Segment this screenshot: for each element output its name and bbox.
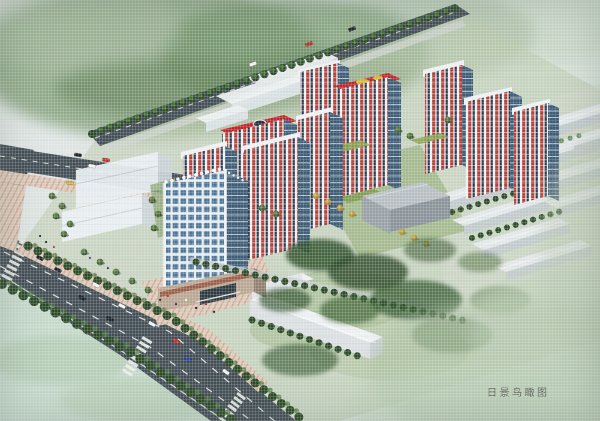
caption-title: 日景鸟瞰图 [487, 388, 597, 400]
car [74, 153, 82, 158]
rendering-scene [0, 0, 600, 421]
apartment-tower-back-2-red-roof [334, 73, 401, 198]
apartment-tower-front-2 [242, 132, 310, 261]
tower-corner-pilaster [224, 169, 227, 280]
apartment-tower-right-2 [464, 87, 522, 199]
tower-corner-pilaster [163, 183, 166, 294]
aerial-rendering-photo: 日景鸟瞰图 [0, 0, 600, 421]
